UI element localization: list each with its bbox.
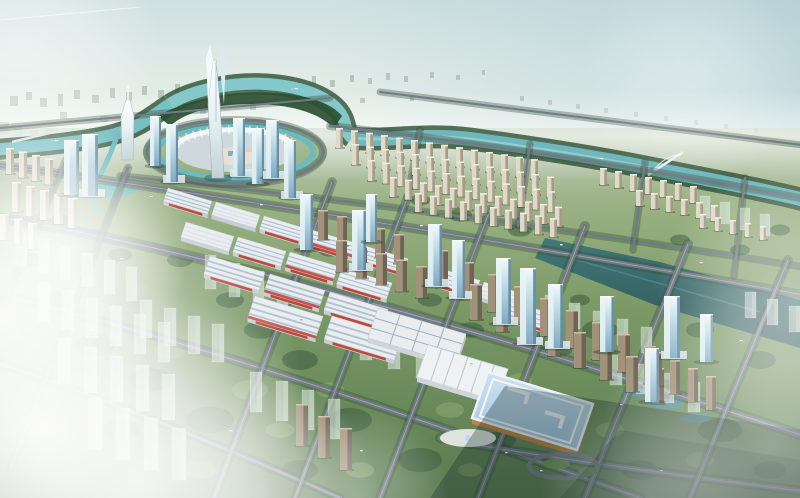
masterplan-rendering (0, 0, 800, 498)
aerial-city-rendering (0, 0, 800, 498)
